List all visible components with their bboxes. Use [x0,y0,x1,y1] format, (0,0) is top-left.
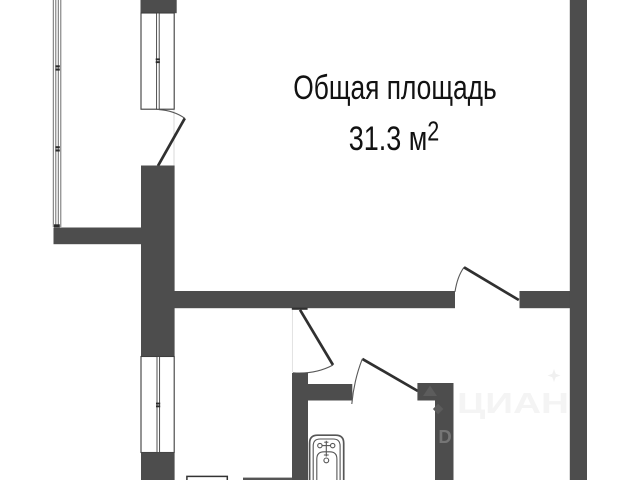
svg-text:D: D [438,426,451,447]
svg-text:ЦИАН: ЦИАН [457,388,569,420]
svg-text:31.3 м2: 31.3 м2 [349,115,440,158]
svg-text:Общая площадь: Общая площадь [293,69,497,107]
